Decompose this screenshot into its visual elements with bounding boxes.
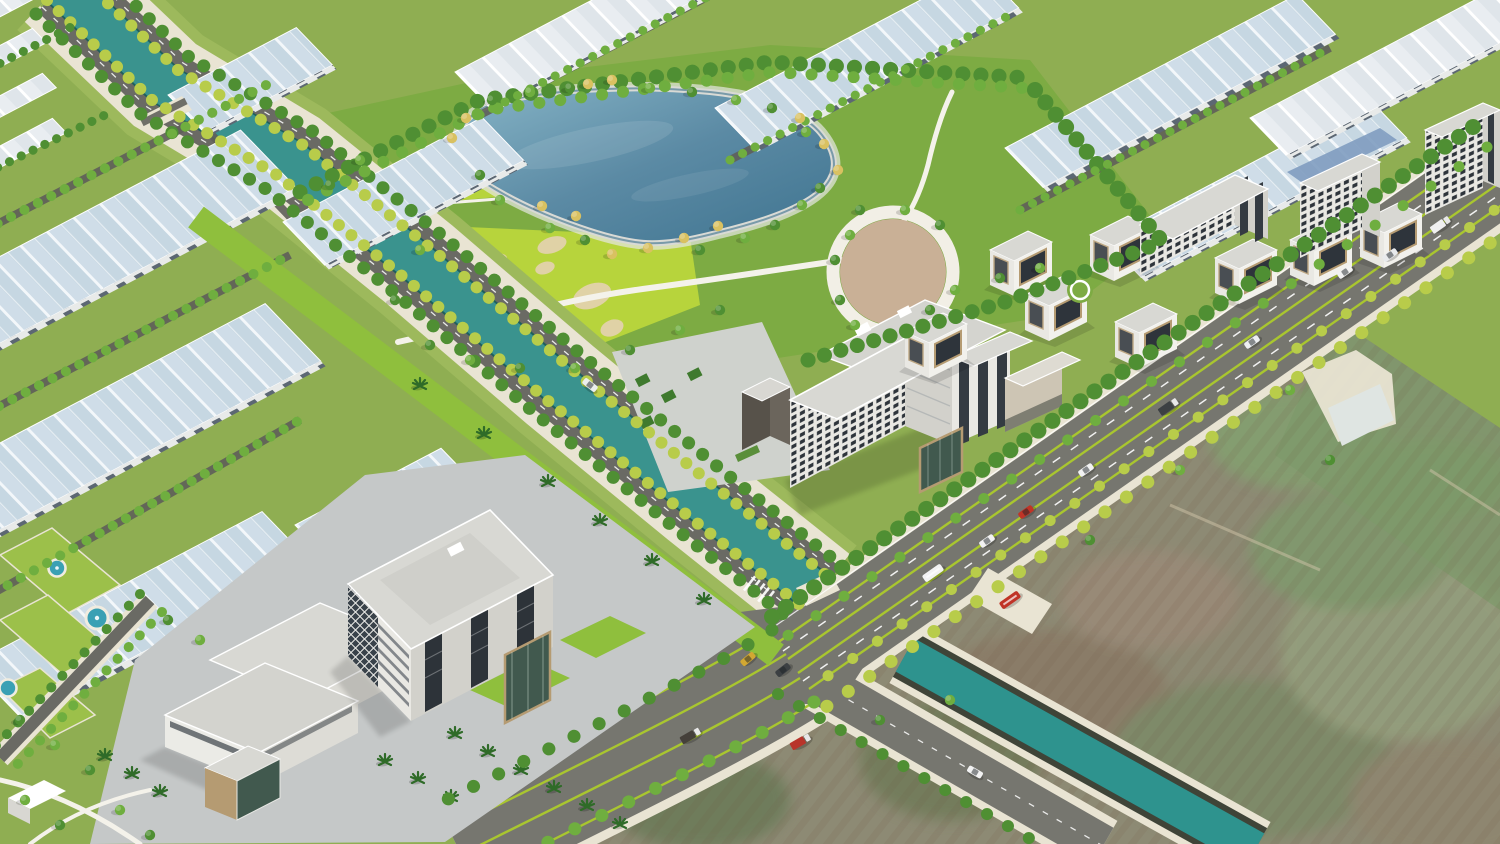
render-canvas	[0, 0, 1500, 844]
aerial-render	[0, 0, 1500, 844]
